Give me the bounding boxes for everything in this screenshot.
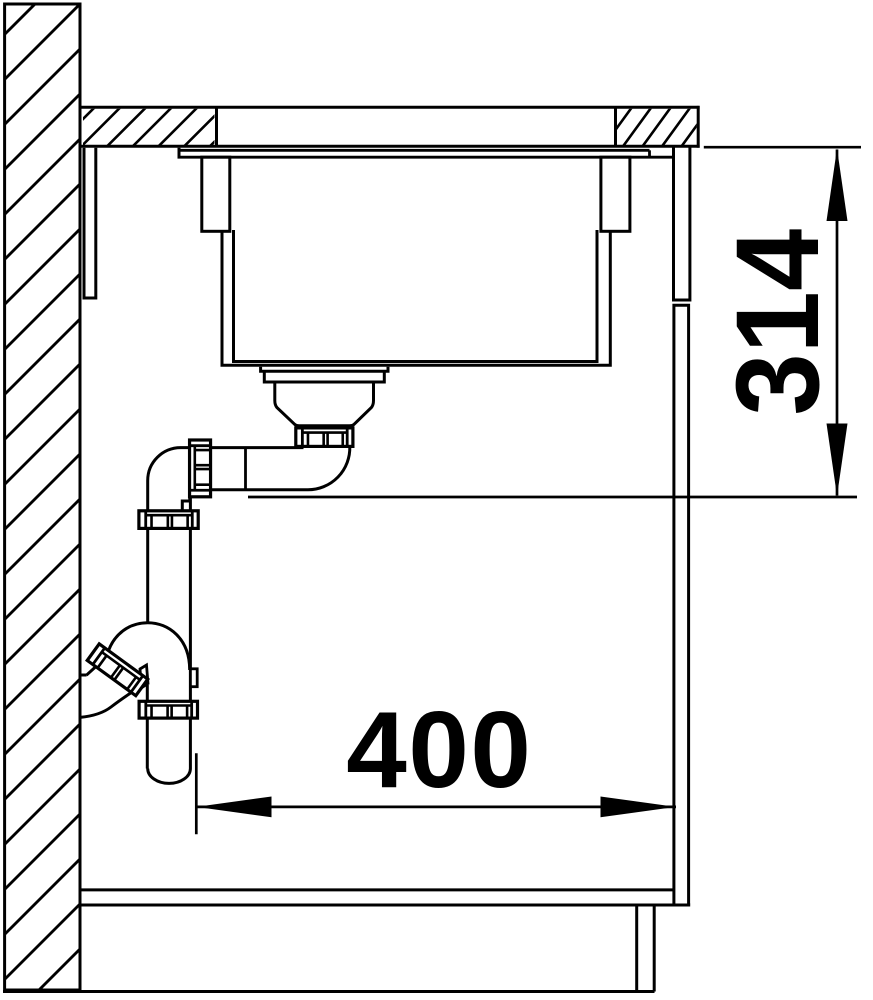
svg-text:314: 314 <box>712 229 843 416</box>
svg-text:400: 400 <box>346 690 532 811</box>
